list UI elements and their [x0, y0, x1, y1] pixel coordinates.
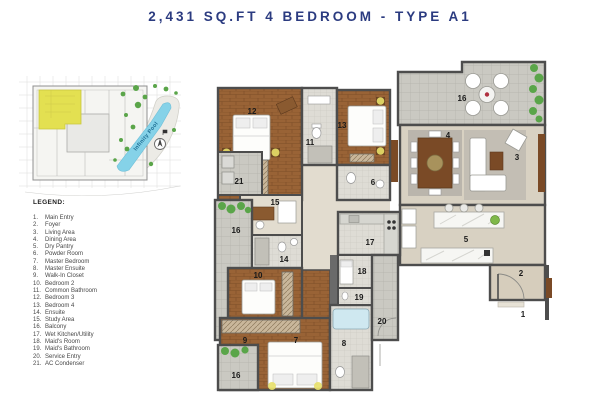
legend-item-4: 4.Dining Area — [33, 237, 193, 244]
room-maid: 18 — [338, 255, 372, 288]
room-number-maid-bath: 19 — [355, 293, 364, 302]
wardrobe-icon — [350, 154, 374, 162]
room-bedroom2: 10 — [228, 268, 302, 318]
room-number-powder: 6 — [371, 178, 376, 187]
toilet-icon — [347, 173, 356, 184]
room-bedroom4: 13 — [337, 90, 390, 165]
room-number-ac: 21 — [235, 177, 244, 186]
legend-item-9: 9.Walk-In Closet — [33, 273, 193, 280]
legend-item-11: 11.Common Bathroom — [33, 288, 193, 295]
room-number-balcony-top: 16 — [458, 94, 467, 103]
room-number-master-bedroom: 7 — [294, 336, 299, 345]
room-master-ensuite: 8 — [330, 305, 372, 390]
legend-item-3: 3.Living Area — [33, 230, 193, 237]
tv-console-icon — [538, 134, 545, 192]
room-maid-bath: 19 — [338, 288, 372, 305]
wardrobe-icon — [282, 272, 293, 316]
keyplan-unit-highlight — [39, 90, 81, 129]
legend-item-14: 14.Ensuite — [33, 310, 193, 317]
sink-icon — [349, 216, 359, 223]
room-common-bathroom: 11 — [302, 88, 337, 165]
legend-item-21: 21.AC Condenser — [33, 361, 193, 368]
legend-item-17: 17.Wet Kitchen/Utility — [33, 332, 193, 339]
legend: LEGEND: 1.Main Entry 2.Foyer 3.Living Ar… — [33, 199, 193, 368]
room-living-dining: 4 3 — [390, 125, 545, 205]
legend-item-20: 20.Service Entry — [33, 354, 193, 361]
room-wet-kitchen: 17 — [338, 212, 400, 255]
sink-icon — [376, 180, 384, 188]
room-ensuite14: 14 — [252, 235, 302, 268]
floor-plan: 16 — [212, 56, 552, 394]
entry-step — [498, 302, 524, 307]
room-number-service-entry: 20 — [378, 317, 387, 326]
toilet-icon — [278, 242, 286, 252]
vanity-icon — [308, 96, 330, 104]
room-foyer: 2 1 — [490, 265, 552, 320]
room-number-bedroom4: 13 — [338, 121, 347, 130]
room-balcony-bottom: 16 — [218, 345, 258, 390]
shower-icon — [255, 238, 269, 265]
floorplan-sheet: 2,431 SQ.FT 4 BEDROOM - TYPE A1 Infinity… — [0, 0, 600, 400]
legend-item-13: 13.Bedroom 4 — [33, 303, 193, 310]
legend-heading: LEGEND: — [33, 199, 193, 206]
room-number-bedroom2: 10 — [254, 271, 263, 280]
bed-icon — [268, 342, 322, 390]
room-number-dry-pantry: 5 — [464, 235, 469, 244]
legend-item-15: 15.Study Area — [33, 317, 193, 324]
room-number-balcony-left: 16 — [232, 226, 241, 235]
chair-icon — [256, 221, 264, 229]
room-number-wet-kitchen: 17 — [366, 238, 375, 247]
legend-item-10: 10.Bedroom 2 — [33, 281, 193, 288]
room-number-walk-in-closet: 9 — [243, 336, 248, 345]
legend-item-19: 19.Maid's Bathroom — [33, 346, 193, 353]
stove-icon — [384, 214, 398, 254]
room-number-master-ensuite: 8 — [342, 339, 347, 348]
legend-item-18: 18.Maid's Room — [33, 339, 193, 346]
room-number-bedroom3: 12 — [248, 107, 257, 116]
room-dry-pantry: 5 — [400, 204, 545, 265]
bed-icon — [242, 280, 275, 314]
legend-item-1: 1.Main Entry — [33, 215, 193, 222]
room-number-common-bathroom: 11 — [306, 138, 315, 147]
room-number-foyer: 2 — [519, 269, 524, 278]
room-number-ensuite14: 14 — [280, 255, 289, 264]
shower-icon — [308, 146, 332, 163]
toilet-icon — [342, 292, 348, 300]
legend-item-6: 6.Powder Room — [33, 251, 193, 258]
bathtub-icon — [333, 309, 369, 329]
bed-icon — [348, 97, 386, 155]
page-title: 2,431 SQ.FT 4 BEDROOM - TYPE A1 — [20, 9, 600, 24]
legend-item-12: 12.Bedroom 3 — [33, 295, 193, 302]
pantry-counter-icon — [421, 248, 493, 263]
room-ac-condenser: 21 — [218, 152, 262, 195]
sink-icon — [290, 238, 297, 245]
legend-item-8: 8.Master Ensuite — [33, 266, 193, 273]
legend-item-7: 7.Master Bedroom — [33, 259, 193, 266]
shoe-cabinet-icon — [546, 278, 552, 298]
toilet-icon — [336, 367, 345, 378]
room-number-dining: 4 — [446, 131, 451, 140]
legend-item-2: 2.Foyer — [33, 222, 193, 229]
room-number-living: 3 — [515, 153, 520, 162]
room-number-balcony-bottom: 16 — [232, 371, 241, 380]
room-service-entry: 20 — [372, 255, 398, 366]
dining-table-icon — [411, 131, 459, 195]
walk-in-closet-wardrobe-icon — [222, 320, 300, 333]
shower-icon — [352, 356, 369, 388]
legend-item-5: 5.Dry Pantry — [33, 244, 193, 251]
kitchen-counter-icon — [340, 214, 384, 224]
key-plan: Infinity Pool — [5, 74, 190, 196]
room-powder: 6 — [337, 165, 390, 200]
room-balcony-top: 16 — [398, 62, 545, 125]
legend-item-16: 16.Balcony — [33, 324, 193, 331]
room-number-study: 15 — [271, 198, 280, 207]
toilet-icon — [312, 124, 321, 139]
room-number-main-entry: 1 — [521, 310, 526, 319]
room-number-maid: 18 — [358, 267, 367, 276]
dining-cabinet-icon — [390, 140, 398, 182]
